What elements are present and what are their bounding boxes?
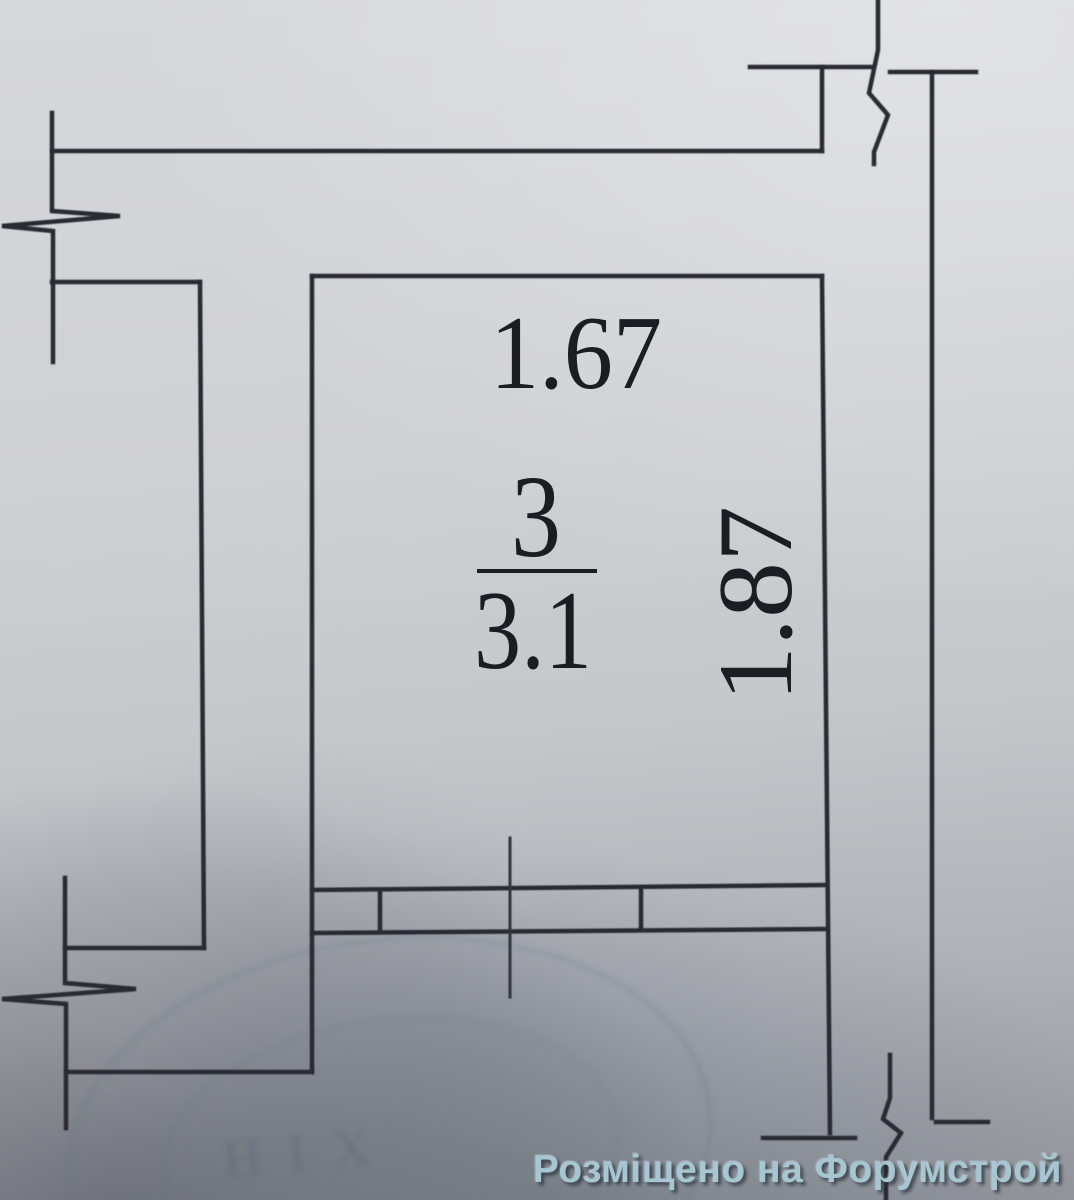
dimension-height-label: 1.87 [697,506,814,702]
labels: 1.67 3 3.1 1.87 [474,294,814,702]
room-area-label: 3.1 [474,569,592,693]
floor-plan-drawing: НІХ [0,0,1074,1200]
window-band-outer-line [312,885,826,890]
window-band-inner-line [312,929,826,933]
left-outer-wall-bottom-with-break-icon [2,878,136,1128]
inner-left-wall [200,282,204,948]
stamp-faint-letters: НІХ [221,1115,400,1190]
watermark-text: Розміщено на Форумстрой [533,1148,1062,1192]
room-number-label: 3 [511,451,561,582]
room-right-wall [822,276,830,1133]
scanned-floor-plan-photo: НІХ [0,0,1074,1200]
wall-break-icon-top-right [869,0,888,164]
dimension-width-label: 1.67 [490,294,662,411]
